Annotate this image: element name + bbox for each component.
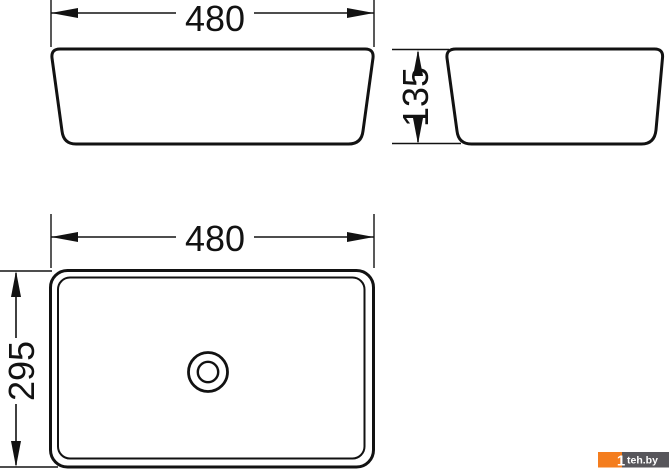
front-view-outline bbox=[52, 49, 373, 144]
arrow-left-icon bbox=[51, 232, 78, 242]
watermark-logo: 1 teh.by bbox=[598, 452, 669, 470]
technical-drawing-page: 480 135 480 bbox=[0, 0, 670, 471]
arrow-right-icon bbox=[347, 232, 374, 242]
side-height-dimension: 135 bbox=[395, 67, 436, 127]
plan-view-outer-rim bbox=[51, 271, 374, 468]
plan-width-dimension: 480 bbox=[185, 218, 245, 259]
plan-view: 480 295 bbox=[0, 214, 374, 467]
drain-inner-circle bbox=[198, 362, 218, 382]
side-view: 135 bbox=[392, 49, 663, 144]
arrow-left-icon bbox=[51, 8, 78, 18]
front-view: 480 bbox=[51, 0, 374, 144]
drain-outer-circle bbox=[189, 353, 228, 392]
sink-dimension-drawing: 480 135 480 bbox=[0, 0, 670, 471]
plan-depth-dimension: 295 bbox=[1, 341, 42, 401]
front-width-dimension: 480 bbox=[185, 0, 245, 39]
watermark-prefix: 1 bbox=[617, 453, 625, 470]
arrow-down-icon bbox=[11, 441, 21, 467]
arrow-right-icon bbox=[347, 8, 374, 18]
drain-hole bbox=[189, 353, 228, 392]
plan-view-inner-rim bbox=[58, 278, 365, 459]
arrow-up-icon bbox=[11, 271, 21, 297]
side-view-outline bbox=[447, 49, 663, 144]
watermark-site-label: teh.by bbox=[627, 455, 658, 467]
